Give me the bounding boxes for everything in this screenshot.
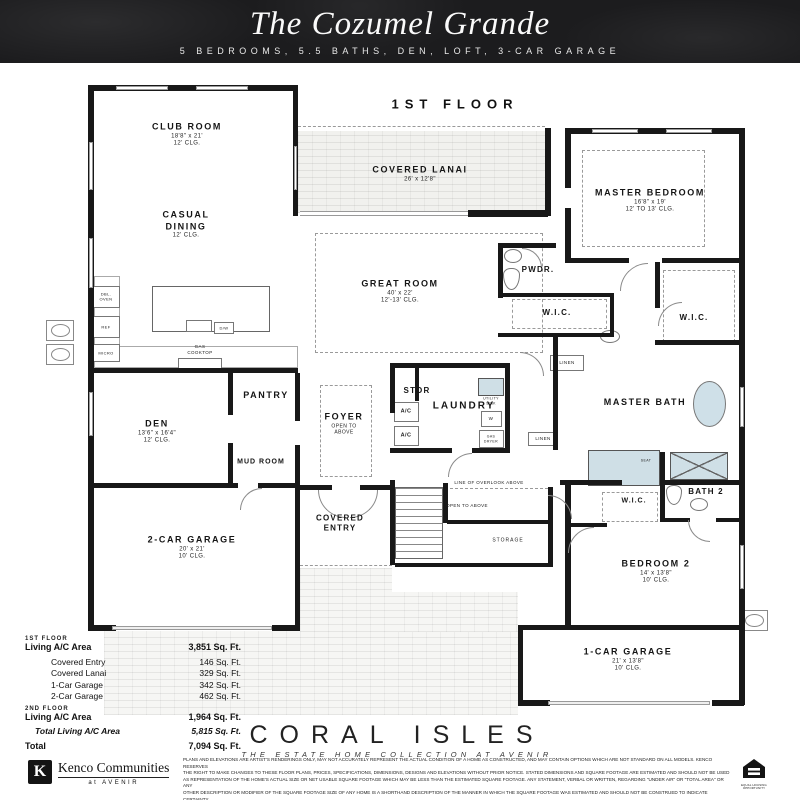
wall	[610, 293, 614, 337]
room-label-covered-lanai: COVERED LANAI 26' x 12'8"	[372, 164, 467, 183]
window	[196, 86, 248, 90]
door-swing	[658, 302, 682, 326]
header-banner: The Cozumel Grande 5 BEDROOMS, 5.5 BATHS…	[0, 0, 800, 63]
table-row: Covered Lanai329 Sq. Ft.	[25, 668, 241, 680]
room-label-2car-garage: 2-CAR GARAGE 20' x 21' 10' CLG.	[148, 534, 237, 561]
label-ac-1: A/C	[401, 408, 412, 415]
wall	[228, 373, 233, 415]
kenco-logo-icon: K	[28, 760, 52, 784]
disclaimer-line: OTHER DESCRIPTION OR MODIFIER OF THE SQU…	[183, 790, 731, 800]
window	[740, 545, 744, 589]
wall	[518, 625, 523, 705]
table-row: Living A/C Area1,964 Sq. Ft.	[25, 712, 241, 724]
label-dw: D/W	[220, 325, 229, 330]
area-summary-table: 1ST FLOOR Living A/C Area3,851 Sq. Ft. C…	[25, 633, 241, 752]
label-seat: SEAT	[641, 459, 651, 464]
plan-title: The Cozumel Grande	[250, 8, 550, 41]
wall	[295, 487, 300, 627]
lanai-slider-doors	[300, 211, 468, 216]
window	[116, 86, 168, 90]
label-gas-dryer: GAS DRYER	[481, 434, 501, 443]
room-label-bath-2: BATH 2	[688, 487, 724, 497]
wall	[390, 480, 395, 565]
wall	[553, 335, 558, 450]
door-swing	[448, 453, 472, 477]
window	[89, 238, 93, 288]
floor-label: 1ST FLOOR	[392, 97, 519, 112]
room-label-stor: STOR	[404, 386, 431, 396]
label-gas-cooktop: GAS COOKTOP	[184, 344, 216, 356]
label-open-to-above: OPEN TO ABOVE	[446, 503, 488, 509]
room-label-covered-entry: COVERED ENTRY	[312, 514, 368, 535]
label-storage: STORAGE	[492, 538, 523, 545]
wall	[660, 452, 665, 522]
door-swing	[568, 527, 594, 553]
utility-sink-fixture	[478, 378, 504, 396]
table-row: Living A/C Area3,851 Sq. Ft.	[25, 642, 241, 654]
wall	[498, 243, 556, 248]
wall	[293, 85, 298, 130]
window	[89, 392, 93, 436]
wall	[505, 363, 510, 453]
master-tub	[693, 381, 726, 427]
label-ref: REF	[101, 324, 110, 329]
window	[89, 142, 93, 190]
wall	[660, 480, 744, 485]
room-label-foyer: FOYER OPEN TO ABOVE	[324, 412, 363, 437]
room-label-pantry: PANTRY	[243, 390, 289, 402]
wall	[655, 262, 660, 308]
room-label-mud-room: MUD ROOM	[237, 457, 285, 466]
wall	[518, 625, 744, 630]
wall	[565, 208, 571, 263]
label-dbl-oven: DBL. OVEN	[96, 292, 116, 303]
equal-housing-logo: EQUAL HOUSING OPPORTUNITY	[740, 759, 768, 791]
door-swing	[620, 263, 648, 291]
pwdr-sink	[504, 249, 522, 263]
builder-name: Kenco Communities	[58, 760, 169, 778]
wall	[655, 340, 744, 345]
table-row: 2-Car Garage462 Sq. Ft.	[25, 691, 241, 703]
label-linen-1: LINEN	[559, 360, 574, 366]
wall	[258, 483, 300, 488]
label-ac-2: A/C	[401, 432, 412, 439]
entry-edge-dashed	[300, 565, 392, 566]
builder-subtitle: at AVENIR	[58, 780, 169, 786]
wall	[390, 448, 452, 453]
legal-disclaimer: PLANS AND ELEVATIONS ARE ARTIST'S RENDER…	[183, 757, 731, 800]
wall	[88, 368, 298, 373]
room-label-master-bedroom: MASTER BEDROOM 16'8" x 19' 12' TO 13' CL…	[595, 187, 705, 214]
wall	[545, 128, 551, 216]
wall	[447, 520, 548, 524]
door-swing	[688, 520, 710, 542]
wall	[565, 258, 629, 263]
wall	[662, 258, 744, 263]
room-label-great-room: GREAT ROOM 40' x 22' 12'-13' CLG.	[361, 278, 438, 305]
wall	[498, 293, 614, 297]
wall	[472, 448, 510, 453]
wall	[390, 363, 510, 368]
entry-walkway	[300, 568, 392, 632]
window	[666, 129, 712, 133]
door-swing	[240, 488, 262, 510]
wall	[498, 243, 503, 298]
window	[294, 146, 297, 190]
label-washer: W	[489, 416, 494, 422]
garage-door	[548, 701, 710, 705]
wall	[468, 210, 548, 217]
table-row-total: Total7,094 Sq. Ft.	[25, 741, 241, 753]
label-line-of-overlook: LINE OF OVERLOOK ABOVE	[454, 480, 523, 486]
wall	[272, 625, 300, 631]
disclaimer-line: PLANS AND ELEVATIONS ARE ARTIST'S RENDER…	[183, 757, 731, 770]
window	[740, 387, 744, 427]
wall	[390, 363, 395, 413]
wall	[295, 373, 300, 421]
equal-housing-house-icon	[742, 759, 766, 779]
window	[592, 129, 638, 133]
room-label-wic-1: W.I.C.	[543, 308, 572, 318]
bath2-shower	[670, 452, 728, 480]
wall	[395, 563, 553, 567]
lanai-edge-dashed	[298, 126, 545, 127]
wall	[716, 518, 744, 522]
plan-subtitle: 5 BEDROOMS, 5.5 BATHS, DEN, LOFT, 3-CAR …	[180, 46, 620, 56]
room-label-club-room: CLUB ROOM 18'8" x 21' 12' CLG.	[152, 121, 222, 148]
label-linen-2: LINEN	[535, 436, 550, 442]
table-row-total-living: Total Living A/C Area5,815 Sq. Ft.	[25, 726, 241, 738]
door-swing	[520, 352, 544, 376]
room-label-wic-3: W.I.C.	[621, 496, 646, 505]
table-row: 1-Car Garage342 Sq. Ft.	[25, 680, 241, 692]
room-label-pwdr: PWDR.	[522, 265, 555, 275]
wall	[228, 443, 233, 485]
wall	[88, 483, 238, 488]
wall	[295, 445, 300, 485]
staircase	[395, 487, 443, 559]
planter	[46, 320, 74, 341]
planter	[46, 344, 74, 365]
wall	[518, 700, 550, 706]
floorplan-flyer: The Cozumel Grande 5 BEDROOMS, 5.5 BATHS…	[0, 0, 800, 800]
wall	[712, 700, 744, 706]
builder-logo: K Kenco Communities at AVENIR	[28, 760, 169, 786]
room-label-casual-dining: CASUAL DINING 12' CLG.	[153, 209, 219, 240]
table-row: Covered Entry146 Sq. Ft.	[25, 657, 241, 669]
room-label-master-bath: MASTER BATH	[604, 397, 686, 409]
bath2-sink	[690, 498, 708, 511]
equal-housing-text: EQUAL HOUSING OPPORTUNITY	[740, 784, 768, 791]
room-label-den: DEN 13'6" x 16'4" 12' CLG.	[138, 418, 176, 445]
wall	[565, 128, 571, 188]
room-label-wic-2: W.I.C.	[680, 313, 709, 323]
wall	[660, 518, 690, 522]
room-label-1car-garage: 1-CAR GARAGE 21' x 13'8" 10' CLG.	[584, 646, 673, 673]
garage-door	[112, 626, 272, 630]
brand-logo-coral-isles: CORAL ISLES	[249, 721, 544, 750]
room-label-bedroom-2: BEDROOM 2 14' x 13'8" 10' CLG.	[622, 558, 691, 585]
disclaimer-line: THE RIGHT TO MAKE CHANGES TO THESE FLOOR…	[183, 770, 731, 777]
island-sink	[186, 320, 212, 332]
bath2-toilet	[666, 485, 682, 505]
disclaimer-line: AS REPRESENTATION OF THE HOME'S ACTUAL S…	[183, 777, 731, 790]
wall	[565, 523, 607, 527]
label-utility-sink: UTILITY SINK	[480, 396, 502, 405]
label-micro: MICRO	[98, 350, 113, 355]
